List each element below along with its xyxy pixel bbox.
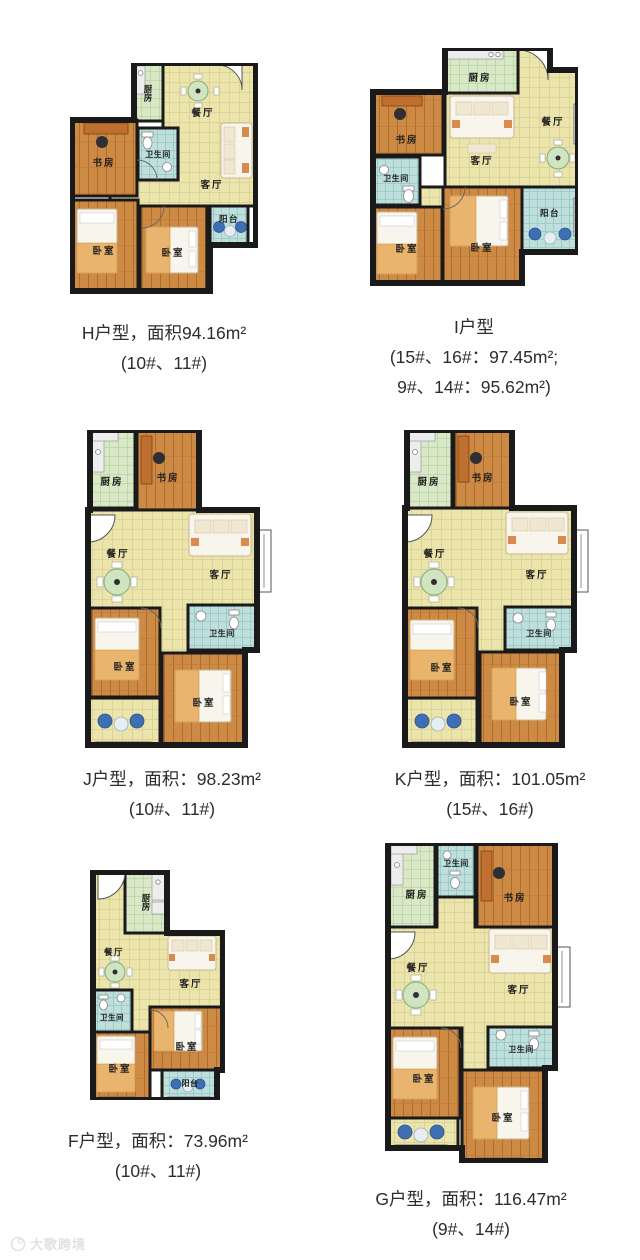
label-bath: 卫生间 xyxy=(526,628,552,638)
bed-1 xyxy=(77,209,117,273)
caption-G-line1: G户型，面积：116.47m² xyxy=(375,1184,566,1214)
label-study: 书房 xyxy=(395,134,418,146)
label-bath: 卫生间 xyxy=(383,173,409,183)
label-bedroom: 卧室 xyxy=(412,1073,435,1085)
label-dining: 餐厅 xyxy=(103,947,124,957)
bed-2 xyxy=(175,670,231,722)
sofa xyxy=(506,512,568,554)
caption-H-line1: H户型，面积94.16m² xyxy=(82,318,246,348)
label-bedroom: 卧室 xyxy=(108,1063,131,1075)
plan-card-K: 厨房 书房 餐厅 客厅 卫生间 卧室 卧室 xyxy=(402,430,596,748)
label-kitchen: 厨房 xyxy=(100,476,123,488)
label-bath: 卫生间 xyxy=(145,149,171,159)
plan-card-H: 厨房 餐厅 书房 卫生间 客厅 卧室 卧室 阳台 xyxy=(70,63,258,298)
caption-F-line2: (10#、11#) xyxy=(68,1156,248,1186)
label-study: 书房 xyxy=(156,472,179,484)
label-bedroom: 卧室 xyxy=(161,247,184,259)
caption-G-line2: (9#、14#) xyxy=(375,1214,566,1244)
label-kitchen: 厨房 xyxy=(405,889,428,901)
floorplan-G: 厨房 卫生间 书房 餐厅 客厅 卫生间 卧室 卧室 xyxy=(385,843,577,1163)
washbasin xyxy=(163,163,172,172)
label-kitchen: 厨房 xyxy=(417,476,440,488)
label-bedroom: 卧室 xyxy=(175,1041,198,1053)
washbasin xyxy=(513,613,523,623)
label-study: 书房 xyxy=(471,472,494,484)
label-bedroom: 卧室 xyxy=(92,245,115,257)
sofa xyxy=(189,514,251,556)
label-kitchen: 厨房 xyxy=(143,84,153,103)
caption-I: I户型 (15#、16#：97.45m²; 9#、14#：95.62m²) xyxy=(390,312,558,402)
label-balcony: 阳台 xyxy=(182,1078,199,1088)
label-dining: 餐厅 xyxy=(190,107,214,119)
bed-2 xyxy=(492,668,546,720)
label-study: 书房 xyxy=(92,157,115,169)
label-bedroom: 卧室 xyxy=(113,661,136,673)
label-kitchen: 厨房 xyxy=(141,893,151,912)
label-bath: 卫生间 xyxy=(209,628,235,638)
floorplan-H: 厨房 餐厅 书房 卫生间 客厅 卧室 卧室 阳台 xyxy=(70,63,258,298)
plan-card-J: 厨房 书房 餐厅 客厅 卫生间 卧室 卧室 xyxy=(83,430,279,748)
toilet xyxy=(403,186,414,203)
caption-J-line1: J户型，面积：98.23m² xyxy=(83,764,261,794)
sofa xyxy=(489,929,551,973)
caption-I-line1: I户型 xyxy=(390,312,558,342)
sofa xyxy=(221,123,252,178)
washbasin-2 xyxy=(496,1030,506,1040)
floorplan-I: 厨房 餐厅 书房 卫生间 客厅 卧室 卧室 阳台 xyxy=(370,48,578,287)
caption-H-line2: (10#、11#) xyxy=(82,348,246,378)
caption-J-line2: (10#、11#) xyxy=(83,794,261,824)
caption-I-line3: 9#、14#：95.62m²) xyxy=(390,372,558,402)
label-balcony: 阳台 xyxy=(540,208,560,218)
floorplan-K: 厨房 书房 餐厅 客厅 卫生间 卧室 卧室 xyxy=(402,430,596,748)
label-bedroom: 卧室 xyxy=(491,1112,514,1124)
label-living: 客厅 xyxy=(524,569,548,581)
caption-F: F户型，面积：73.96m² (10#、11#) xyxy=(68,1126,248,1186)
toilet xyxy=(229,610,239,629)
label-kitchen: 厨房 xyxy=(468,72,491,84)
label-bedroom: 卧室 xyxy=(192,697,215,709)
bed-2 xyxy=(450,196,508,246)
kitchen-counter xyxy=(152,874,165,914)
caption-I-line2: (15#、16#：97.45m²; xyxy=(390,342,558,372)
label-living: 客厅 xyxy=(208,569,232,581)
label-bath: 卫生间 xyxy=(443,858,469,868)
label-dining: 餐厅 xyxy=(405,962,429,974)
label-balcony: 阳台 xyxy=(219,214,239,224)
room-bath-1 xyxy=(437,843,475,897)
plan-card-G: 厨房 卫生间 书房 餐厅 客厅 卫生间 卧室 卧室 xyxy=(385,843,577,1163)
watermark: 大歌跨境 xyxy=(10,1234,86,1253)
caption-K-line1: K户型，面积：101.05m² xyxy=(395,764,586,794)
sofa xyxy=(168,936,216,970)
caption-H: H户型，面积94.16m² (10#、11#) xyxy=(82,318,246,378)
caption-K: K户型，面积：101.05m² (15#、16#) xyxy=(395,764,586,824)
label-bedroom: 卧室 xyxy=(470,242,493,254)
caption-F-line1: F户型，面积：73.96m² xyxy=(68,1126,248,1156)
label-living: 客厅 xyxy=(469,155,493,167)
label-dining: 餐厅 xyxy=(422,548,446,560)
label-dining: 餐厅 xyxy=(105,548,129,560)
washbasin xyxy=(196,611,206,621)
watermark-logo-icon xyxy=(10,1236,26,1252)
label-living: 客厅 xyxy=(199,179,223,191)
label-bedroom: 卧室 xyxy=(395,243,418,255)
label-bath: 卫生间 xyxy=(508,1044,534,1054)
caption-J: J户型，面积：98.23m² (10#、11#) xyxy=(83,764,261,824)
kitchen-counter xyxy=(447,50,503,59)
washbasin xyxy=(117,994,125,1002)
toilet xyxy=(450,871,460,889)
washbasin xyxy=(443,851,451,859)
floorplan-F: 厨房 餐厅 客厅 卫生间 卧室 卧室 阳台 xyxy=(90,870,225,1100)
label-bath: 卫生间 xyxy=(100,1012,124,1022)
watermark-text: 大歌跨境 xyxy=(30,1234,86,1253)
bed-1 xyxy=(377,212,417,274)
label-bedroom: 卧室 xyxy=(509,696,532,708)
label-living: 客厅 xyxy=(506,984,530,996)
floorplan-J: 厨房 书房 餐厅 客厅 卫生间 卧室 卧室 xyxy=(83,430,279,748)
caption-K-line2: (15#、16#) xyxy=(395,794,586,824)
plan-card-I: 厨房 餐厅 书房 卫生间 客厅 卧室 卧室 阳台 xyxy=(370,48,578,287)
label-living: 客厅 xyxy=(178,978,202,990)
floorplan-sheet: 厨房 餐厅 书房 卫生间 客厅 卧室 卧室 阳台 xyxy=(0,0,640,1260)
bed-1 xyxy=(393,1037,437,1099)
toilet xyxy=(99,995,108,1010)
plan-card-F: 厨房 餐厅 客厅 卫生间 卧室 卧室 阳台 xyxy=(90,870,225,1100)
label-study: 书房 xyxy=(503,892,526,904)
label-dining: 餐厅 xyxy=(540,116,564,128)
caption-G: G户型，面积：116.47m² (9#、14#) xyxy=(375,1184,566,1244)
label-bedroom: 卧室 xyxy=(430,662,453,674)
toilet xyxy=(142,132,153,149)
